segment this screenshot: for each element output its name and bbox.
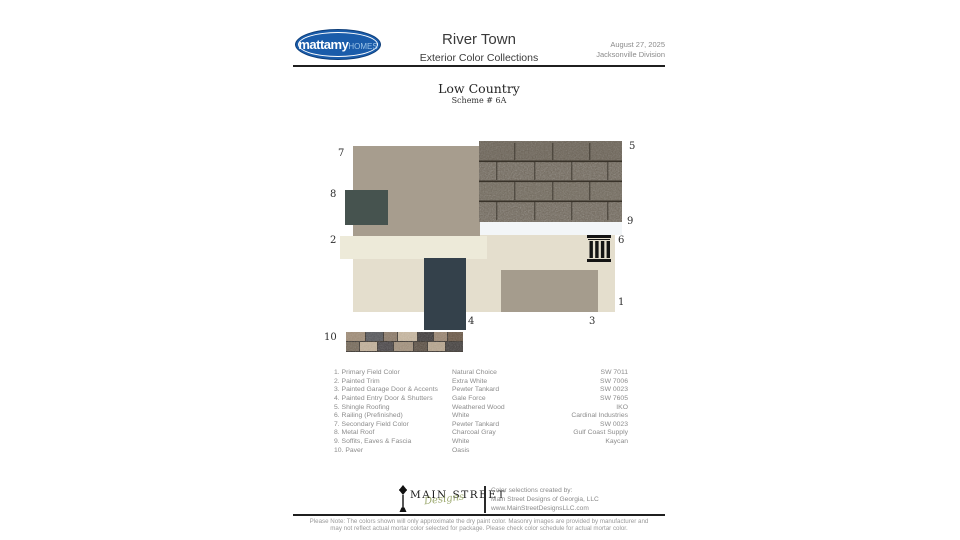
legend-row: 8. Metal Roof Charcoal Gray Gulf Coast S… <box>334 429 628 438</box>
color-legend: 1. Primary Field Color Natural Choice SW… <box>334 369 628 455</box>
swatch-label-5: 5 <box>629 141 635 152</box>
legend-row: 10. Paver Oasis <box>334 447 628 456</box>
legend-color-name: Pewter Tankard <box>452 386 548 395</box>
legend-color-name: Oasis <box>452 447 548 456</box>
legend-color-name: Gale Force <box>452 395 548 404</box>
swatch-label-9: 9 <box>627 216 633 227</box>
legend-color-name: Weathered Wood <box>452 404 548 413</box>
legend-code: Gulf Coast Supply <box>548 429 628 438</box>
legend-color-name: Pewter Tankard <box>452 421 548 430</box>
swatch-entry-door <box>424 258 466 330</box>
footer-rule <box>293 514 665 516</box>
legend-color-name: Charcoal Gray <box>452 429 548 438</box>
legend-color-name: Extra White <box>452 378 548 387</box>
legend-code <box>548 447 628 456</box>
legend-color-name: White <box>452 438 548 447</box>
legend-row: 6. Railing (Prefinished) White Cardinal … <box>334 412 628 421</box>
division-text: Jacksonville Division <box>596 50 665 60</box>
swatch-soffits-strip <box>479 221 622 235</box>
date-text: August 27, 2025 <box>596 40 665 50</box>
swatch-label-1: 1 <box>618 297 624 308</box>
credit-line: Main Street Designs of Georgia, LLC <box>491 496 661 505</box>
legend-item-label: 3. Painted Garage Door & Accents <box>334 386 452 395</box>
legend-code: SW 0023 <box>548 386 628 395</box>
legend-item-label: 9. Soffits, Eaves & Fascia <box>334 438 452 447</box>
swatch-garage-door <box>501 270 598 312</box>
railing-icon <box>587 235 611 263</box>
swatch-label-3: 3 <box>589 316 595 327</box>
credit-website: www.MainStreetDesignsLLC.com <box>491 505 661 514</box>
scheme-name: Low Country <box>293 81 665 96</box>
credit-block: Color selections created by: Main Street… <box>491 487 661 513</box>
main-street-designs-logo: MAIN STREET Designs <box>398 485 482 513</box>
legend-color-name: White <box>452 412 548 421</box>
legend-code: IKO <box>548 404 628 413</box>
date-division-block: August 27, 2025 Jacksonville Division <box>596 40 665 60</box>
scheme-number: Scheme # 6A <box>293 96 665 105</box>
legend-row: 2. Painted Trim Extra White SW 7006 <box>334 378 628 387</box>
swatch-metal-roof <box>345 190 388 225</box>
legend-item-label: 5. Shingle Roofing <box>334 404 452 413</box>
legend-item-label: 4. Painted Entry Door & Shutters <box>334 395 452 404</box>
swatch-label-4: 4 <box>468 316 474 327</box>
legend-item-label: 2. Painted Trim <box>334 378 452 387</box>
swatch-paver <box>346 332 463 352</box>
legend-row: 9. Soffits, Eaves & Fascia White Kaycan <box>334 438 628 447</box>
footer-divider <box>484 486 486 513</box>
legend-row: 5. Shingle Roofing Weathered Wood IKO <box>334 404 628 413</box>
credit-line: Color selections created by: <box>491 487 661 496</box>
swatch-label-7: 7 <box>338 148 344 159</box>
swatch-label-8: 8 <box>330 189 336 200</box>
header-rule <box>293 65 665 67</box>
swatch-label-10: 10 <box>324 332 337 343</box>
legend-code: Kaycan <box>548 438 628 447</box>
lamppost-icon <box>398 485 408 513</box>
legend-color-name: Natural Choice <box>452 369 548 378</box>
swatch-label-2: 2 <box>330 235 336 246</box>
legend-item-label: 1. Primary Field Color <box>334 369 452 378</box>
disclaimer-note: Please Note: The colors shown will only … <box>303 518 655 532</box>
legend-code: SW 7605 <box>548 395 628 404</box>
legend-row: 1. Primary Field Color Natural Choice SW… <box>334 369 628 378</box>
legend-row: 4. Painted Entry Door & Shutters Gale Fo… <box>334 395 628 404</box>
legend-item-label: 8. Metal Roof <box>334 429 452 438</box>
swatch-label-6: 6 <box>618 235 624 246</box>
legend-code: SW 7006 <box>548 378 628 387</box>
legend-item-label: 6. Railing (Prefinished) <box>334 412 452 421</box>
legend-row: 7. Secondary Field Color Pewter Tankard … <box>334 421 628 430</box>
swatch-shingle-roofing <box>479 141 622 222</box>
legend-code: Cardinal Industries <box>548 412 628 421</box>
legend-item-label: 10. Paver <box>334 447 452 456</box>
legend-code: SW 0023 <box>548 421 628 430</box>
color-scheme-sheet: mattamyHOMES River Town Exterior Color C… <box>0 0 960 540</box>
legend-item-label: 7. Secondary Field Color <box>334 421 452 430</box>
legend-row: 3. Painted Garage Door & Accents Pewter … <box>334 386 628 395</box>
swatch-painted-trim <box>340 236 487 259</box>
legend-code: SW 7011 <box>548 369 628 378</box>
